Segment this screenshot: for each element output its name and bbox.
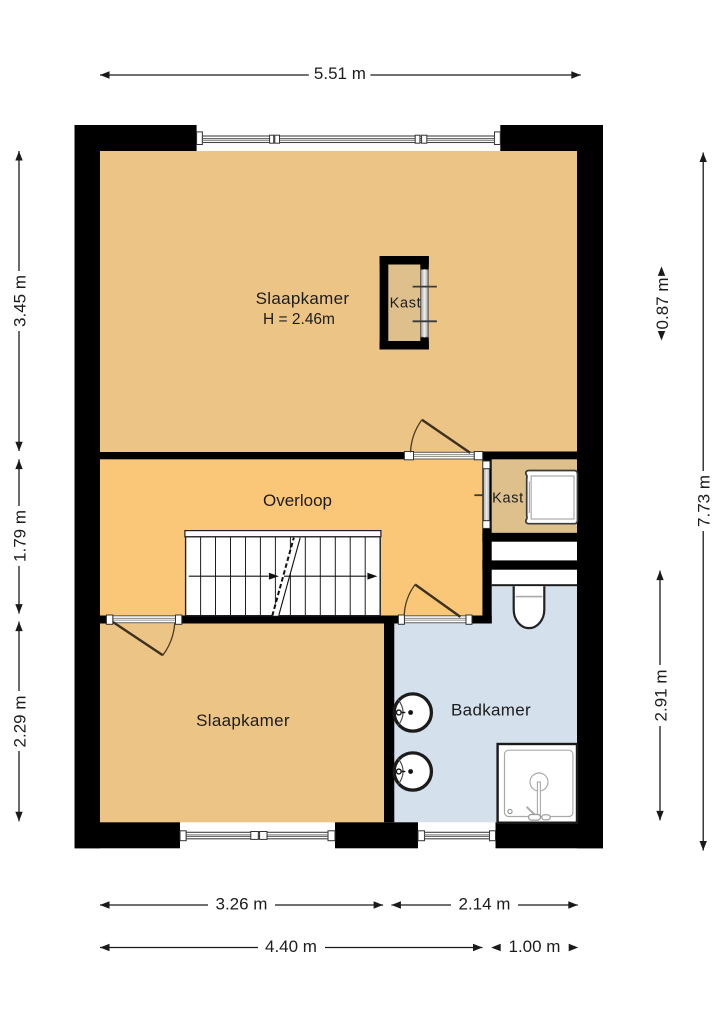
svg-text:Slaapkamer: Slaapkamer — [256, 289, 350, 308]
svg-text:0.87 m: 0.87 m — [653, 278, 672, 330]
svg-text:4.40 m: 4.40 m — [265, 937, 317, 956]
svg-text:Overloop: Overloop — [263, 491, 332, 510]
svg-text:2.91 m: 2.91 m — [651, 670, 670, 722]
svg-text:3.45 m: 3.45 m — [11, 275, 30, 327]
svg-text:7.73 m: 7.73 m — [695, 475, 714, 527]
svg-text:H = 2.46m: H = 2.46m — [263, 311, 335, 328]
svg-text:5.51 m: 5.51 m — [314, 64, 366, 83]
svg-text:3.26 m: 3.26 m — [216, 895, 268, 914]
svg-text:1.00 m: 1.00 m — [509, 937, 561, 956]
svg-text:Kast: Kast — [390, 296, 422, 312]
svg-text:Slaapkamer: Slaapkamer — [196, 711, 290, 730]
svg-text:1.79 m: 1.79 m — [11, 510, 30, 562]
svg-text:Badkamer: Badkamer — [451, 701, 531, 720]
svg-text:Kast: Kast — [492, 491, 524, 507]
svg-text:2.14 m: 2.14 m — [459, 895, 511, 914]
svg-text:2.29 m: 2.29 m — [11, 696, 30, 748]
